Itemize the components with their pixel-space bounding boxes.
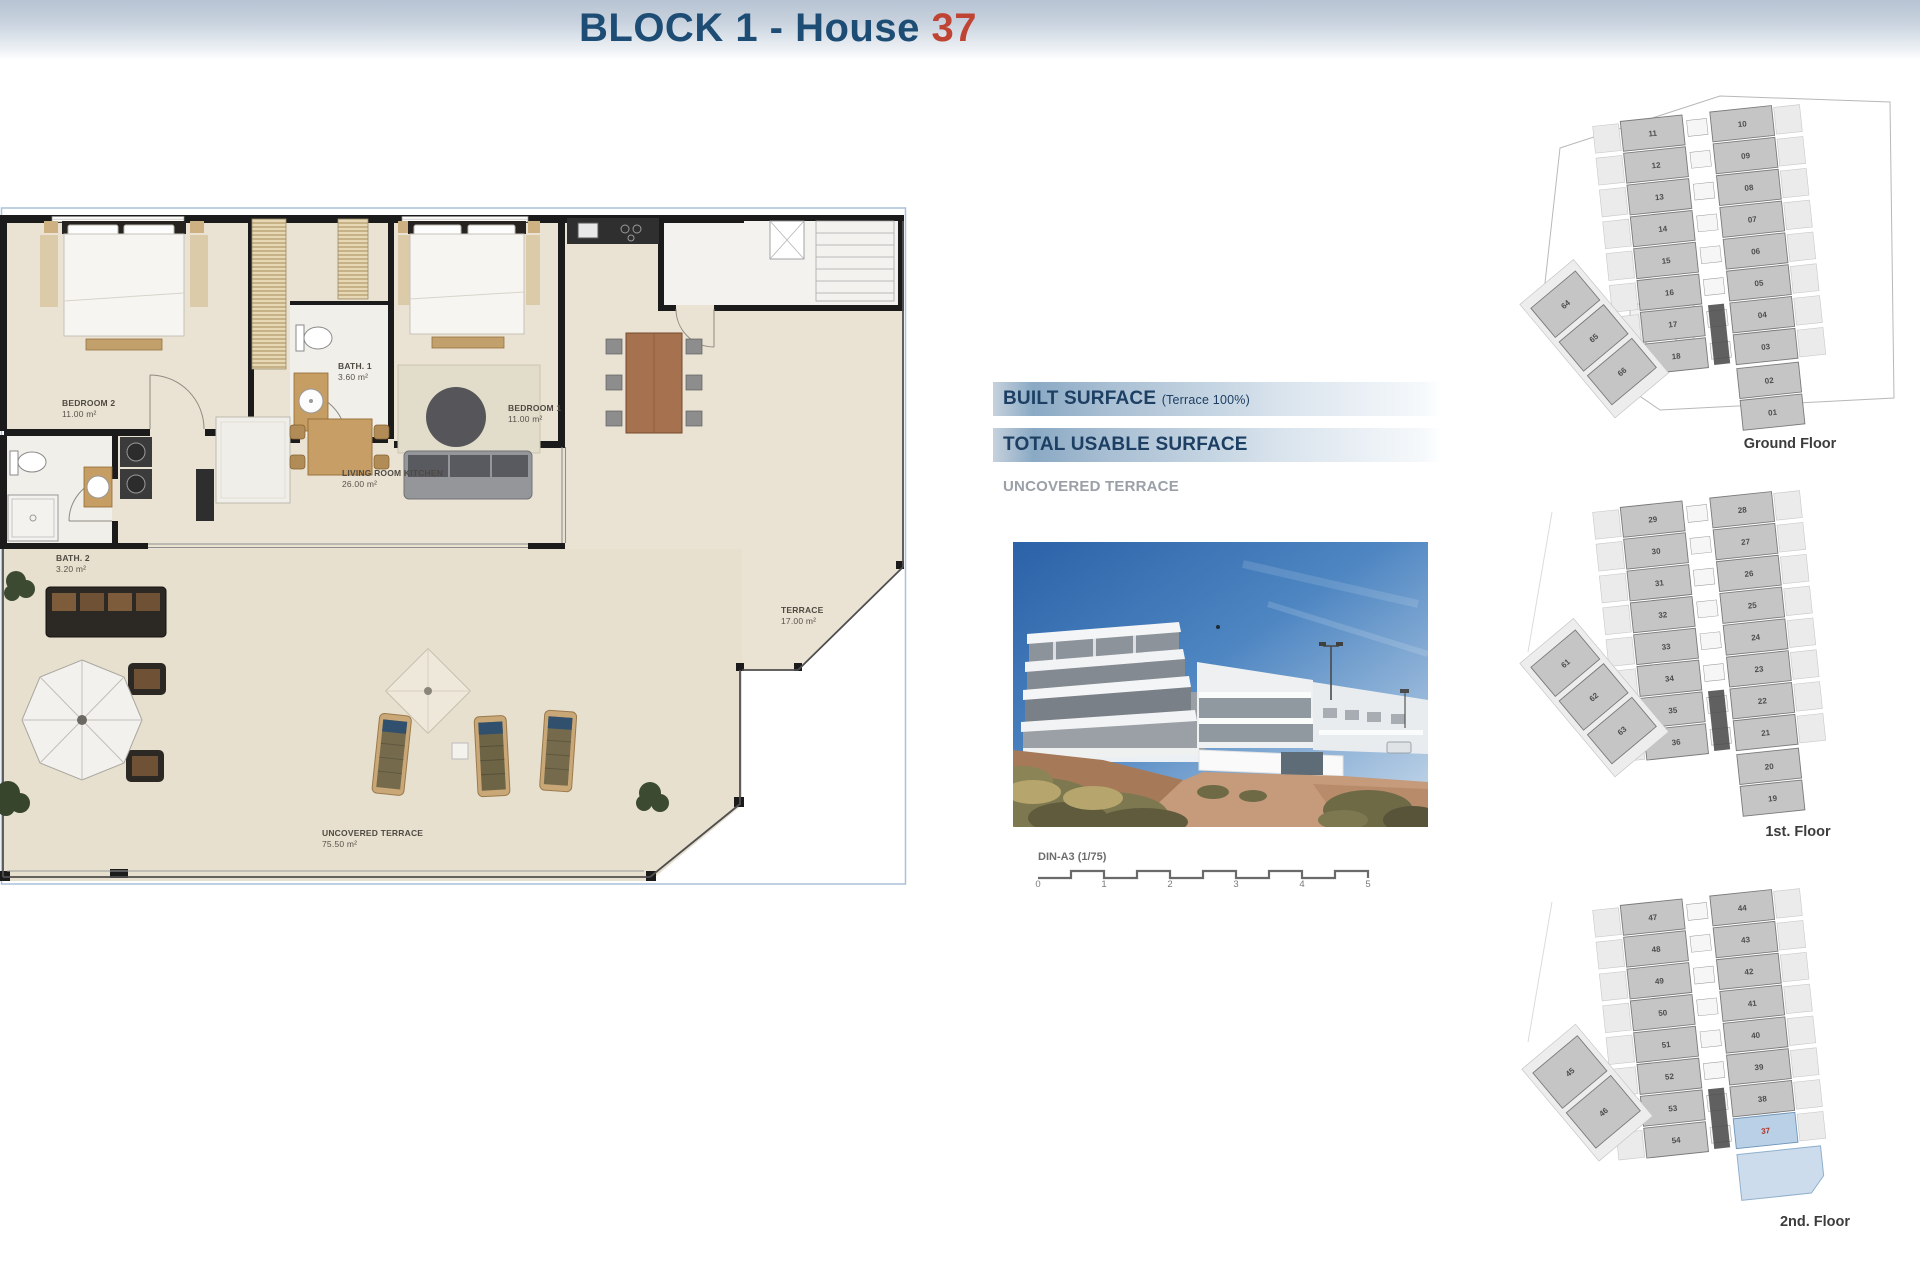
label-bedroom2: BEDROOM 211.00 m²: [62, 398, 115, 419]
svg-text:51: 51: [1661, 1040, 1671, 1050]
svg-text:11: 11: [1648, 129, 1658, 139]
svg-text:15: 15: [1661, 256, 1671, 266]
svg-text:30: 30: [1651, 546, 1661, 556]
svg-text:32: 32: [1658, 610, 1668, 620]
label-bath2: BATH. 23.20 m²: [56, 553, 90, 574]
svg-text:16: 16: [1665, 288, 1675, 298]
label-bath1: BATH. 13.60 m²: [338, 361, 372, 382]
label-bedroom1: BEDROOM 111.00 m²: [508, 403, 561, 424]
building-photo: [1013, 542, 1428, 827]
svg-text:04: 04: [1757, 310, 1767, 320]
scale-tick: 5: [1362, 879, 1374, 890]
svg-text:42: 42: [1744, 967, 1754, 977]
svg-text:34: 34: [1665, 674, 1675, 684]
first-floor-label: 1st. Floor: [1738, 824, 1858, 840]
svg-text:33: 33: [1661, 642, 1671, 652]
mini-plan-second-floor: 474448434942504151405239533854374546: [1500, 852, 1900, 1212]
mini-plan-first-floor: 2928302731263225332434233522362120196162…: [1500, 462, 1900, 822]
svg-text:41: 41: [1747, 999, 1757, 1009]
svg-text:48: 48: [1651, 944, 1661, 954]
svg-text:36: 36: [1671, 737, 1681, 747]
svg-text:19: 19: [1768, 794, 1778, 804]
bed-bedroom2: [40, 221, 208, 350]
wardrobe: [338, 219, 368, 299]
page-header: BLOCK 1 - House 37: [0, 0, 1920, 58]
svg-text:22: 22: [1757, 696, 1767, 706]
svg-text:12: 12: [1651, 160, 1661, 170]
svg-text:37: 37: [1761, 1126, 1771, 1136]
bed-bedroom1: [398, 221, 540, 348]
svg-text:47: 47: [1648, 913, 1658, 923]
svg-text:35: 35: [1668, 706, 1678, 716]
parasol: [22, 660, 142, 780]
svg-text:17: 17: [1668, 320, 1678, 330]
terrace-dining-set: [606, 333, 702, 433]
uncovered-terrace-row: UNCOVERED TERRACE 75.70 m²: [993, 470, 1442, 504]
built-surface-note: (Terrace 100%): [1162, 393, 1250, 407]
kitchen-counter: [567, 218, 659, 244]
built-surface-label: BUILT SURFACE: [1003, 388, 1156, 409]
main-floor-plan: [0, 205, 910, 887]
svg-text:25: 25: [1747, 601, 1757, 611]
svg-text:21: 21: [1761, 728, 1771, 738]
svg-text:20: 20: [1764, 762, 1774, 772]
svg-text:14: 14: [1658, 224, 1668, 234]
scale-tick: 1: [1098, 879, 1110, 890]
svg-text:01: 01: [1768, 408, 1778, 418]
built-surface-row: BUILT SURFACE (Terrace 100%) 78.80 m²: [993, 382, 1442, 416]
svg-text:52: 52: [1665, 1072, 1675, 1082]
ground-floor-label: Ground Floor: [1730, 436, 1850, 452]
brochure-page: BLOCK 1 - House 37: [0, 0, 1920, 1280]
svg-text:13: 13: [1655, 192, 1665, 202]
scale-label: DIN-A3 (1/75): [1038, 851, 1106, 863]
usable-surface-label: TOTAL USABLE SURFACE: [1003, 434, 1248, 455]
bath1-fixtures: [294, 325, 332, 431]
svg-text:49: 49: [1655, 976, 1665, 986]
label-uncovered-terrace: UNCOVERED TERRACE75.50 m²: [322, 828, 423, 849]
svg-text:54: 54: [1671, 1135, 1681, 1145]
svg-text:26: 26: [1744, 569, 1754, 579]
svg-text:08: 08: [1744, 183, 1754, 193]
svg-text:18: 18: [1671, 351, 1681, 361]
uncovered-terrace-label: UNCOVERED TERRACE: [1003, 478, 1179, 495]
svg-text:02: 02: [1764, 376, 1774, 386]
scale-tick: 4: [1296, 879, 1308, 890]
svg-text:50: 50: [1658, 1008, 1668, 1018]
svg-text:24: 24: [1751, 633, 1761, 643]
svg-text:31: 31: [1655, 578, 1665, 588]
svg-text:06: 06: [1751, 247, 1761, 257]
page-title: BLOCK 1 - House 37: [0, 0, 1556, 56]
svg-text:44: 44: [1737, 903, 1747, 913]
svg-text:29: 29: [1648, 515, 1658, 525]
svg-text:10: 10: [1737, 119, 1747, 129]
wardrobe: [252, 219, 286, 369]
title-house-number: 37: [931, 6, 977, 50]
label-living: LIVING ROOM KITCHEN26.00 m²: [342, 468, 443, 489]
second-floor-label: 2nd. Floor: [1755, 1214, 1875, 1230]
svg-text:38: 38: [1757, 1094, 1767, 1104]
svg-text:09: 09: [1741, 151, 1751, 161]
svg-text:23: 23: [1754, 664, 1764, 674]
mini-plan-ground-floor: 1110120913081407150616051704180302016465…: [1500, 88, 1900, 448]
title-block-house: BLOCK 1 - House: [579, 6, 931, 50]
svg-text:43: 43: [1741, 935, 1751, 945]
svg-text:53: 53: [1668, 1104, 1678, 1114]
usable-surface-row: TOTAL USABLE SURFACE 72.00 m²: [993, 428, 1442, 462]
svg-text:27: 27: [1741, 537, 1751, 547]
svg-text:05: 05: [1754, 278, 1764, 288]
svg-text:39: 39: [1754, 1062, 1764, 1072]
svg-text:07: 07: [1747, 215, 1757, 225]
label-terrace: TERRACE17.00 m²: [781, 605, 824, 626]
scale-tick: 2: [1164, 879, 1176, 890]
scale-tick: 0: [1032, 879, 1044, 890]
svg-text:03: 03: [1761, 342, 1771, 352]
scale-bar: [1037, 866, 1371, 880]
svg-text:40: 40: [1751, 1031, 1761, 1041]
svg-text:28: 28: [1737, 505, 1747, 515]
scale-tick: 3: [1230, 879, 1242, 890]
